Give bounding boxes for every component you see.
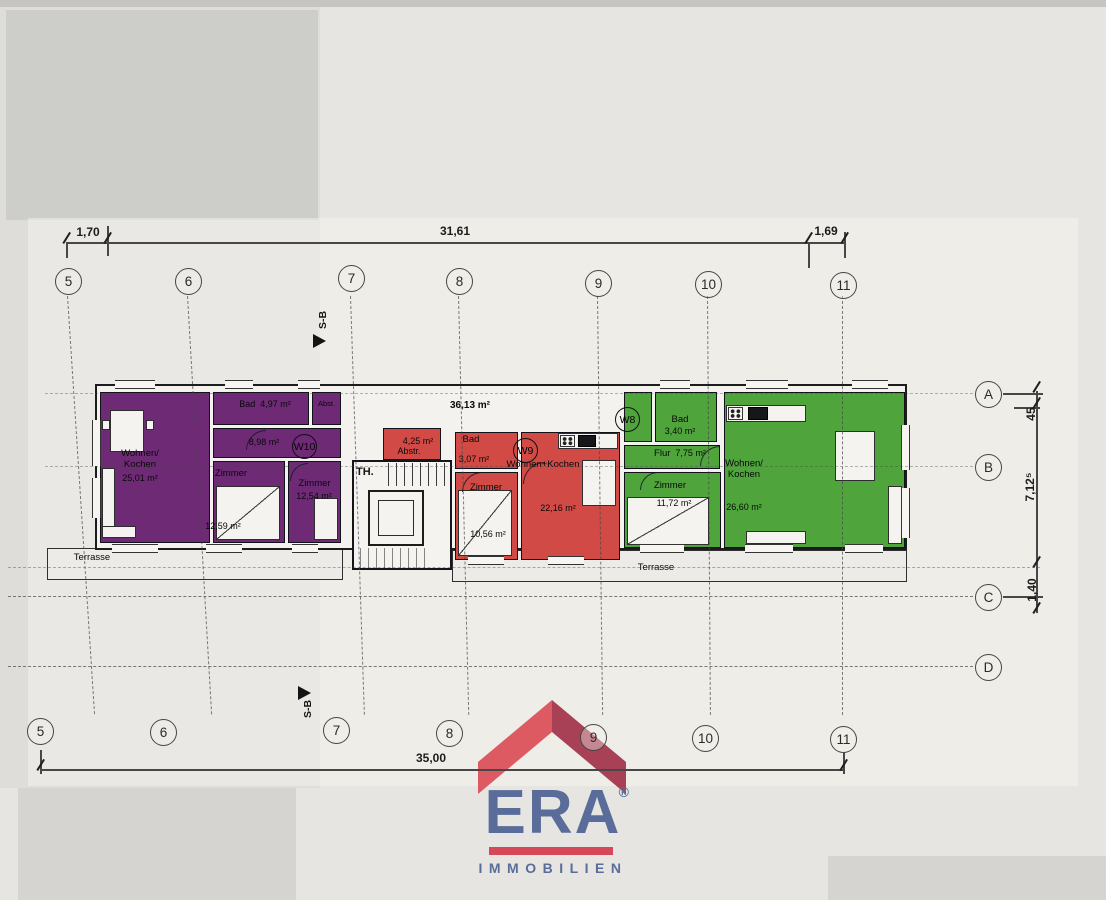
furniture-bed bbox=[216, 486, 280, 540]
grid-col-label: 5 bbox=[65, 274, 73, 289]
grid-dashed-line bbox=[842, 296, 843, 715]
grid-col-6-top: 6 bbox=[175, 268, 202, 295]
section-marker-bottom-label: S-B bbox=[302, 693, 314, 725]
section-marker-top-label: S-B bbox=[317, 303, 329, 337]
grid-row-c: C bbox=[975, 584, 1002, 611]
grid-row-d: D bbox=[975, 654, 1002, 681]
grid-col-label: 6 bbox=[160, 725, 168, 740]
elevator-car bbox=[378, 500, 414, 536]
grid-dashed-line bbox=[45, 393, 973, 394]
grid-row-label: D bbox=[984, 660, 994, 675]
furniture-chair bbox=[102, 420, 110, 430]
grid-row-label: C bbox=[984, 590, 994, 605]
grid-col-label: 11 bbox=[836, 278, 850, 293]
window-mark bbox=[92, 478, 101, 518]
kitchen-cooktop-icon bbox=[728, 407, 743, 420]
label-w9-zimmer-area: 10,56 m² bbox=[458, 529, 518, 540]
label-w10-flur-area: 8,98 m² bbox=[234, 437, 294, 448]
grid-row-a: A bbox=[975, 381, 1002, 408]
grid-col-7-bottom: 7 bbox=[323, 717, 350, 744]
apartment-id-w8: W8 bbox=[615, 407, 640, 432]
label-w10-zimmer1-area: 12,59 m² bbox=[188, 521, 258, 532]
label-w10-zimmer2-area: 12,54 m² bbox=[286, 491, 342, 502]
grid-col-label: 9 bbox=[590, 730, 598, 745]
label-w9-wohnen-area: 22,16 m² bbox=[530, 503, 586, 514]
room-w10-abstellraum bbox=[312, 392, 341, 425]
window-mark bbox=[548, 556, 584, 565]
bottom-right-shade bbox=[828, 856, 1106, 900]
label-w10-wohnen: Wohnen/ Kochen bbox=[104, 448, 176, 471]
grid-col-10-bottom: 10 bbox=[692, 725, 719, 752]
grid-dashed-line bbox=[8, 567, 1040, 568]
label-w10-zimmer1: Zimmer bbox=[196, 468, 266, 479]
grid-col-label: 8 bbox=[456, 274, 464, 289]
grid-col-9-bottom: 9 bbox=[580, 724, 607, 751]
grid-col-label: 8 bbox=[446, 726, 454, 741]
window-mark bbox=[468, 556, 504, 565]
era-brand-text: ERA bbox=[485, 778, 622, 847]
window-mark bbox=[225, 380, 253, 389]
label-w10-bad-area: 4,97 m² bbox=[260, 399, 291, 410]
furniture-sofa bbox=[888, 486, 902, 544]
label-w8-flur-name: Flur bbox=[654, 448, 670, 459]
grid-col-label: 5 bbox=[37, 724, 45, 739]
era-divider-bar bbox=[489, 847, 613, 855]
label-w8-bad-area: 3,40 m² bbox=[652, 426, 708, 437]
label-w9-wohnen: Wohnen+Kochen bbox=[488, 459, 598, 470]
grid-col-label: 9 bbox=[595, 276, 603, 291]
dim-top-line bbox=[66, 242, 845, 244]
apartment-id-w9: W9 bbox=[513, 438, 538, 463]
kitchen-cooktop-icon bbox=[560, 435, 575, 447]
label-roof-terrace-area: 36,13 m² bbox=[430, 400, 510, 412]
grid-col-8-bottom: 8 bbox=[436, 720, 463, 747]
bottom-left-shade bbox=[18, 788, 296, 900]
label-w10-zimmer2: Zimmer bbox=[288, 478, 341, 489]
label-w8-bad: Bad bbox=[660, 414, 700, 425]
grid-col-11-top: 11 bbox=[830, 272, 857, 299]
furniture-chair bbox=[146, 420, 154, 430]
grid-col-5-bottom: 5 bbox=[27, 718, 54, 745]
era-wordmark: ERA ® bbox=[455, 782, 651, 844]
dim-bottom-line bbox=[40, 769, 843, 771]
grid-col-7-top: 7 bbox=[338, 265, 365, 292]
dim-right-mid-label: 7,12⁵ bbox=[1023, 459, 1037, 515]
window-mark bbox=[845, 544, 883, 553]
grid-col-8-top: 8 bbox=[446, 268, 473, 295]
label-w10-bad: Bad 4,97 m² bbox=[222, 399, 308, 410]
grid-col-6-bottom: 6 bbox=[150, 719, 177, 746]
furniture-bed bbox=[458, 490, 512, 556]
label-w8-flur-area: 7,75 m² bbox=[675, 448, 706, 459]
grid-col-label: 6 bbox=[185, 274, 193, 289]
label-w10-bad-name: Bad bbox=[239, 399, 255, 410]
label-w8-wohnen-area: 26,60 m² bbox=[714, 502, 774, 513]
window-mark bbox=[115, 380, 155, 389]
dim-right-lower-label: 1,40 bbox=[1025, 566, 1039, 614]
window-mark bbox=[206, 544, 242, 553]
label-w8-wohnen: Wohnen/ Kochen bbox=[712, 458, 776, 481]
grid-col-label: 10 bbox=[698, 731, 713, 746]
kitchen-sink-icon bbox=[748, 407, 768, 420]
grid-row-b: B bbox=[975, 454, 1002, 481]
scanned-floor-plan-sheet: ERA ® IMMOBILIEN Terrasse Terrasse TH. bbox=[0, 0, 1106, 900]
label-w9-bad: Bad bbox=[455, 434, 487, 445]
grid-dashed-line bbox=[8, 596, 973, 597]
dim-extension bbox=[66, 242, 68, 258]
grid-col-11-bottom: 11 bbox=[830, 726, 857, 753]
stairwell-label: TH. bbox=[356, 466, 374, 478]
grid-col-5-top: 5 bbox=[55, 268, 82, 295]
grid-col-9-top: 9 bbox=[585, 270, 612, 297]
window-mark bbox=[746, 380, 788, 389]
dim-right-upper-label: 45 bbox=[1024, 397, 1038, 431]
era-subtitle: IMMOBILIEN bbox=[472, 860, 634, 876]
furniture-sofa bbox=[102, 526, 136, 538]
kitchen-sink-icon bbox=[578, 435, 596, 447]
label-w9-zimmer: Zimmer bbox=[458, 482, 514, 493]
label-w8-zimmer: Zimmer bbox=[640, 480, 700, 491]
furniture-wardrobe bbox=[314, 498, 338, 540]
window-mark bbox=[640, 544, 684, 553]
terrace-left-label: Terrasse bbox=[62, 552, 122, 563]
grid-col-10-top: 10 bbox=[695, 271, 722, 298]
section-arrow-icon bbox=[313, 334, 326, 348]
top-edge-shade bbox=[0, 0, 1106, 7]
grid-col-label: 11 bbox=[836, 732, 850, 747]
furniture-table bbox=[835, 431, 875, 481]
dim-top-left-label: 1,70 bbox=[68, 225, 108, 239]
furniture-table bbox=[110, 410, 144, 452]
label-w8-zimmer-area: 11,72 m² bbox=[644, 498, 704, 509]
stair-treads-lower bbox=[360, 548, 432, 568]
era-logo: ERA ® IMMOBILIEN bbox=[440, 690, 690, 890]
window-mark bbox=[901, 425, 910, 470]
dim-extension bbox=[1003, 393, 1043, 395]
label-w10-wohnen-area: 25,01 m² bbox=[106, 473, 174, 484]
window-mark bbox=[852, 380, 888, 389]
label-w9-abstr: Abstr. bbox=[388, 446, 430, 457]
window-mark bbox=[298, 380, 320, 389]
grid-row-label: B bbox=[984, 460, 993, 475]
window-mark bbox=[660, 380, 690, 389]
era-registered-mark: ® bbox=[619, 785, 631, 799]
window-mark bbox=[901, 488, 910, 538]
window-mark bbox=[745, 544, 793, 553]
apartment-id-w10: W10 bbox=[292, 434, 317, 459]
window-mark bbox=[292, 544, 318, 553]
dim-top-main-label: 31,61 bbox=[425, 224, 485, 238]
grid-row-label: A bbox=[984, 387, 993, 402]
dim-extension bbox=[808, 242, 810, 268]
window-mark bbox=[92, 420, 101, 466]
grid-col-label: 7 bbox=[333, 723, 341, 738]
grid-dashed-line bbox=[45, 466, 973, 467]
dim-top-right-label: 1,69 bbox=[806, 224, 846, 238]
label-w10-abst: Abst. bbox=[312, 399, 341, 408]
grid-col-label: 7 bbox=[348, 271, 356, 286]
grid-col-label: 10 bbox=[701, 277, 716, 292]
grid-dashed-line bbox=[8, 666, 973, 667]
window-mark bbox=[112, 544, 158, 553]
furniture-sofa bbox=[746, 531, 806, 544]
dim-bottom-label: 35,00 bbox=[405, 751, 457, 765]
